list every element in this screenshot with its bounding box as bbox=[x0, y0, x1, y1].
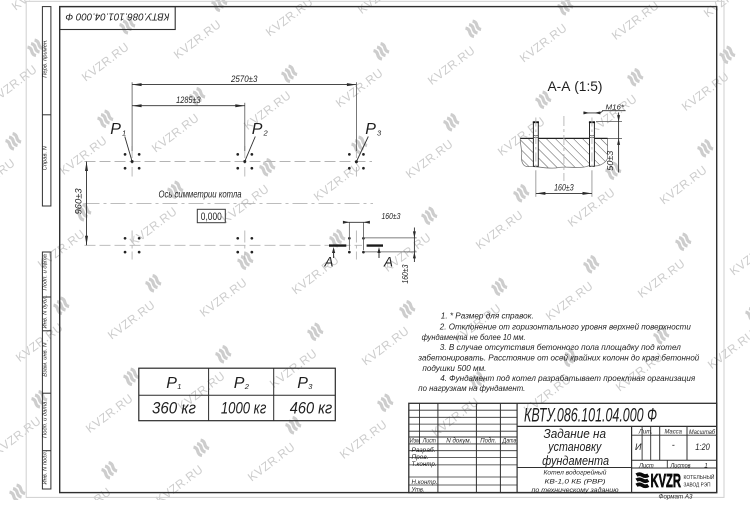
svg-text:460 кг: 460 кг bbox=[290, 400, 333, 418]
svg-text:2. Отклонение от горизонтально: 2. Отклонение от горизонтального уровня … bbox=[439, 321, 691, 331]
svg-text:Масштаб: Масштаб bbox=[689, 430, 716, 436]
svg-text:Ось симметрии котла: Ось симметрии котла bbox=[159, 189, 242, 201]
svg-text:М16*: М16* bbox=[606, 103, 626, 112]
svg-text:1: 1 bbox=[122, 129, 126, 138]
svg-text:N докум.: N докум. bbox=[446, 438, 471, 445]
svg-text:P: P bbox=[234, 375, 245, 392]
svg-text:3. В случае отсутствия бетонно: 3. В случае отсутствия бетонного пола пл… bbox=[440, 342, 681, 352]
svg-text:160±3: 160±3 bbox=[382, 211, 401, 221]
svg-text:И: И bbox=[635, 442, 642, 452]
svg-text:P: P bbox=[166, 375, 177, 392]
svg-text:Изм: Изм bbox=[410, 438, 421, 445]
svg-text:по нагрузкам на фундамент.: по нагрузкам на фундамент. bbox=[418, 383, 525, 393]
svg-text:Пров.: Пров. bbox=[412, 454, 429, 461]
svg-text:КОТЕЛЬНЫЙ: КОТЕЛЬНЫЙ bbox=[684, 473, 715, 481]
svg-text:Взам. инв. N: Взам. инв. N bbox=[43, 342, 49, 377]
svg-text:1. * Размер для справок.: 1. * Размер для справок. bbox=[441, 311, 534, 321]
svg-text:2: 2 bbox=[263, 129, 269, 138]
svg-text:Лит.: Лит. bbox=[638, 430, 653, 436]
svg-text:2: 2 bbox=[244, 382, 250, 391]
svg-text:Котел водогрейный: Котел водогрейный bbox=[544, 469, 607, 477]
svg-text:1:20: 1:20 bbox=[695, 442, 710, 453]
svg-text:Подп.: Подп. bbox=[480, 438, 496, 445]
svg-text:Т.контр.: Т.контр. bbox=[412, 461, 437, 468]
svg-text:Перв. примен.: Перв. примен. bbox=[43, 39, 49, 78]
svg-text:Инв. N дубл.: Инв. N дубл. bbox=[43, 295, 49, 329]
svg-text:2570±3: 2570±3 bbox=[230, 74, 257, 84]
svg-text:0,000: 0,000 bbox=[201, 211, 222, 223]
svg-text:Лист: Лист bbox=[422, 438, 436, 445]
svg-text:Разраб.: Разраб. bbox=[412, 446, 436, 454]
svg-text:Формат А3: Формат А3 bbox=[659, 493, 693, 500]
svg-text:установку: установку bbox=[547, 439, 602, 454]
svg-text:Инв. N подл.: Инв. N подл. bbox=[43, 451, 49, 485]
svg-text:360 кг: 360 кг bbox=[152, 400, 196, 418]
svg-text:подушки 500 мм.: подушки 500 мм. bbox=[422, 363, 486, 373]
svg-text:А-А (1:5): А-А (1:5) bbox=[548, 79, 603, 94]
svg-text:160±3: 160±3 bbox=[554, 182, 574, 192]
svg-text:Масса: Масса bbox=[664, 430, 682, 436]
svg-text:Н.контр.: Н.контр. bbox=[412, 479, 438, 486]
svg-text:Лист: Лист bbox=[638, 462, 653, 469]
svg-text:Подп. и дата: Подп. и дата bbox=[43, 253, 49, 290]
svg-text:960±3: 960±3 bbox=[74, 188, 84, 214]
svg-text:ЗАВОД РЭП: ЗАВОД РЭП bbox=[684, 483, 711, 489]
svg-text:1: 1 bbox=[704, 462, 708, 469]
svg-text:KVZR: KVZR bbox=[651, 470, 682, 491]
svg-text:-: - bbox=[672, 440, 675, 450]
svg-text:по техническому заданию: по техническому заданию bbox=[532, 486, 619, 494]
svg-text:КВТУ.086.101.04.000 Ф: КВТУ.086.101.04.000 Ф bbox=[524, 406, 657, 427]
svg-text:160±3: 160±3 bbox=[400, 264, 410, 283]
svg-text:КВ-1,0 КБ (РВР): КВ-1,0 КБ (РВР) bbox=[545, 478, 606, 485]
svg-text:А: А bbox=[383, 255, 393, 270]
svg-text:P: P bbox=[365, 121, 376, 138]
svg-text:50±3: 50±3 bbox=[605, 150, 615, 170]
svg-text:КВТУ.086.101.04.000 Ф: КВТУ.086.101.04.000 Ф bbox=[65, 11, 169, 22]
svg-text:Утв.: Утв. bbox=[411, 487, 425, 494]
svg-text:А: А bbox=[324, 255, 334, 270]
svg-text:P: P bbox=[252, 121, 263, 138]
svg-text:фундамента не более 10 мм.: фундамента не более 10 мм. bbox=[422, 332, 526, 342]
svg-text:Дата: Дата bbox=[502, 438, 517, 445]
svg-text:P: P bbox=[297, 375, 308, 392]
svg-text:1000 кг: 1000 кг bbox=[221, 400, 267, 418]
svg-text:Подп. и дата: Подп. и дата bbox=[43, 401, 49, 438]
svg-text:забетонировать. Расстояние от: забетонировать. Расстояние от осей крайн… bbox=[417, 353, 699, 363]
svg-text:1: 1 bbox=[177, 382, 181, 391]
svg-text:1285±3: 1285±3 bbox=[176, 95, 201, 105]
svg-text:P: P bbox=[110, 121, 121, 138]
svg-text:фундамента: фундамента bbox=[542, 453, 609, 468]
svg-text:Листов: Листов bbox=[670, 462, 692, 469]
svg-text:4. Фундамент под котел разраба: 4. Фундамент под котел разрабатывает про… bbox=[440, 373, 696, 383]
svg-text:Справ. N: Справ. N bbox=[43, 145, 49, 170]
